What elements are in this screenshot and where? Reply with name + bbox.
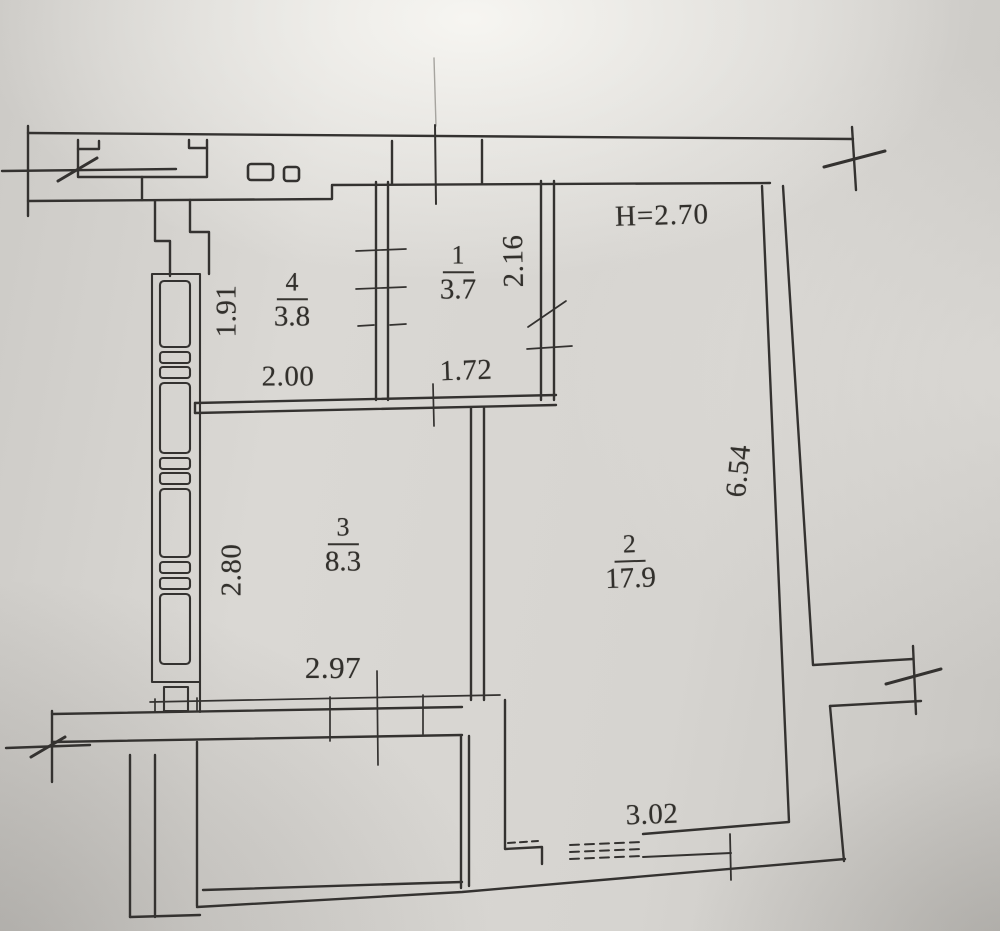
room-3-label: 3 8.3 [325, 514, 361, 577]
room-3-area: 8.3 [325, 545, 361, 577]
room-2-number: 2 [613, 531, 645, 563]
room-3-number: 3 [328, 514, 359, 545]
dimension-room3-width: 2.97 [305, 650, 361, 686]
lower-balcony [130, 700, 845, 917]
room-2-label: 2 17.9 [604, 530, 657, 595]
dimension-room1-height: 2.16 [497, 234, 531, 287]
room-2-area: 17.9 [605, 561, 657, 595]
dimension-room4-width: 2.00 [262, 361, 315, 394]
dimension-room4-height: 1.91 [211, 285, 244, 338]
room-4-label: 4 3.8 [274, 269, 310, 332]
floor-plan-drawing [0, 0, 1000, 931]
right-wall [643, 186, 941, 861]
paper-crease [434, 58, 436, 126]
ceiling-height-note: H=2.70 [615, 198, 710, 233]
dimension-room2-height: 6.54 [720, 443, 758, 499]
dimension-room1-width: 1.72 [439, 354, 493, 389]
scanned-floor-plan: H=2.70 4 3.8 1 3.7 3 8.3 2 17.9 1.91 2.0… [0, 0, 1000, 931]
room-1-label: 1 3.7 [440, 242, 476, 305]
dimension-room3-height: 2.80 [216, 544, 249, 597]
bottom-wall [6, 707, 462, 782]
room-4-area: 3.8 [274, 300, 310, 332]
dimension-room2-width: 3.02 [625, 798, 679, 833]
room-1-area: 3.7 [440, 273, 476, 305]
room-4-number: 4 [277, 269, 308, 300]
room-1-number: 1 [443, 242, 474, 273]
window-strip [152, 274, 200, 712]
